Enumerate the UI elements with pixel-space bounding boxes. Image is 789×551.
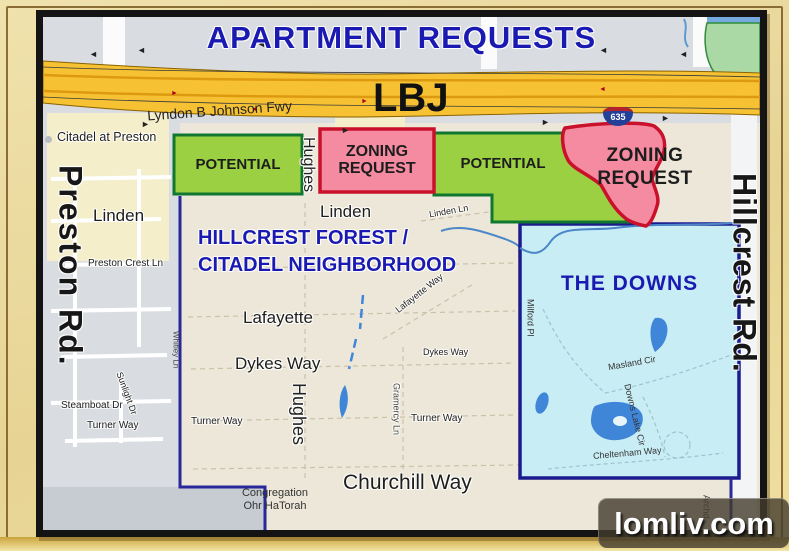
freeway-abbrev-label: LBJ (373, 77, 449, 119)
road-hillcrest-rd: Hillcrest Rd. (727, 173, 760, 478)
poi-citadel-at-preston: Citadel at Preston (57, 131, 156, 144)
lake-island (613, 416, 627, 426)
road-whitley-ln: Whitley Ln (171, 331, 179, 368)
zoning-request-label-east: ZONING REQUEST (555, 145, 735, 191)
poi-marker-icon (45, 136, 52, 143)
zoning-request-label-west: ZONING REQUEST (320, 129, 434, 192)
page-title: APARTMENT REQUESTS (43, 22, 760, 55)
road-linden-west: Linden (93, 207, 144, 225)
road-dykes-way-small: Dykes Way (423, 348, 468, 357)
road-milford-pl: Milford Pl (525, 299, 534, 337)
road-steamboat-dr: Steamboat Dr (61, 401, 123, 412)
arrow-right-icon: ► (171, 90, 178, 97)
shield-number: 635 (610, 112, 625, 122)
watermark-badge: lomliv.com (598, 498, 789, 548)
road-turner-way-east: Turner Way (411, 414, 463, 425)
map-canvas: ◄ ◄ ◄ ◄ ◄ ► ► ► ► ► ► ◄ ◄ APARTMENT REQU… (43, 17, 760, 530)
potential-label-east: POTENTIAL (443, 156, 563, 172)
road-dykes-way: Dykes Way (235, 355, 320, 373)
road-lafayette: Lafayette (243, 309, 313, 327)
arrow-right-icon: ► (541, 117, 550, 127)
road-preston-rd: Preston Rd. (53, 165, 87, 380)
the-downs-area (520, 224, 739, 478)
potential-label-west: POTENTIAL (174, 135, 302, 194)
map-frame: ◄ ◄ ◄ ◄ ◄ ► ► ► ► ► ► ◄ ◄ APARTMENT REQU… (36, 10, 767, 537)
neighborhood-title: HILLCREST FOREST / CITADEL NEIGHBORHOOD (198, 225, 456, 279)
road-turner-way-west: Turner Way (87, 421, 139, 432)
road-churchill-way: Churchill Way (343, 472, 472, 494)
poi-congregation-ohr-hatorah: Congregation Ohr HaTorah (229, 487, 321, 512)
road-preston-crest-ln: Preston Crest Ln (88, 259, 163, 270)
road-hughes-south: Hughes (289, 383, 308, 445)
road-linden-center: Linden (320, 203, 371, 221)
arrow-left-icon: ◄ (599, 86, 606, 93)
arrow-right-icon: ► (661, 113, 670, 123)
road-gramercy-ln: Gramercy Ln (391, 383, 400, 435)
the-downs-title: THE DOWNS (520, 273, 739, 295)
watermark-text: lomliv.com (614, 506, 774, 542)
arrow-right-icon: ► (361, 98, 368, 105)
road-turner-way-center: Turner Way (191, 417, 243, 428)
